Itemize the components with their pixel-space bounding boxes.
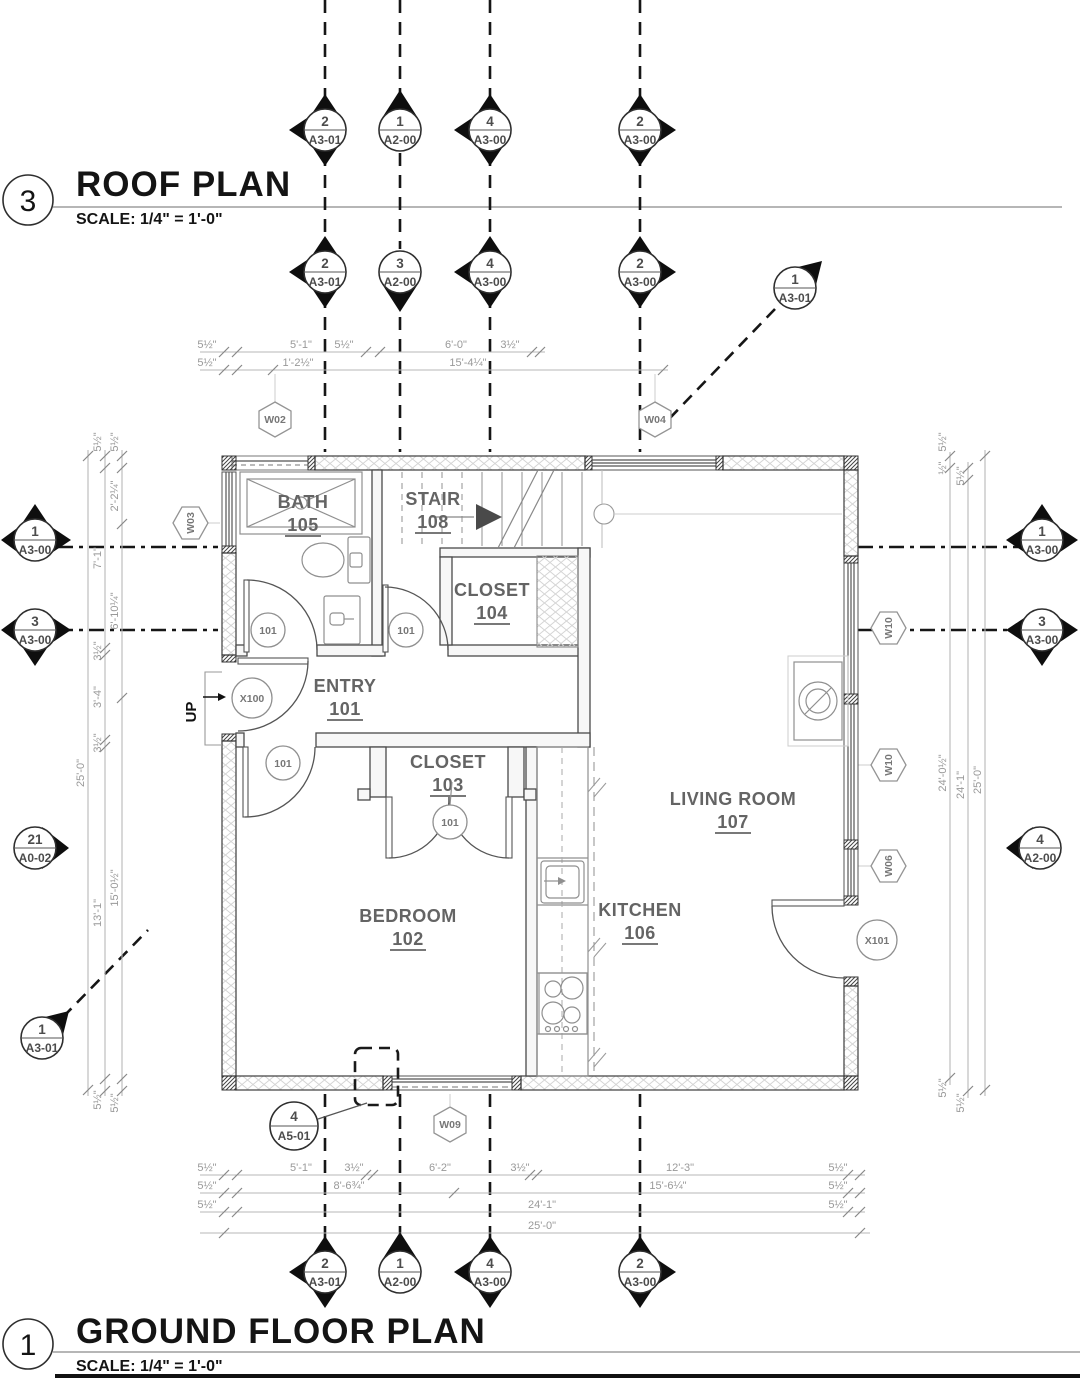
svg-text:106: 106 bbox=[624, 923, 656, 943]
marker-left-0: 1A3-00 bbox=[1, 504, 71, 561]
svg-text:8'-6¾": 8'-6¾" bbox=[333, 1180, 364, 1192]
svg-text:W02: W02 bbox=[264, 414, 286, 426]
svg-text:1: 1 bbox=[31, 524, 39, 539]
marker-top2-4: 1A3-01 bbox=[774, 261, 822, 309]
room-label-living: LIVING ROOM 107 bbox=[670, 789, 797, 833]
svg-text:3: 3 bbox=[31, 614, 39, 629]
svg-text:15'-0½": 15'-0½" bbox=[109, 869, 121, 906]
drawing-sheet: 3 ROOF PLAN SCALE: 1/4" = 1'-0" 5½" 5'-1 bbox=[0, 0, 1080, 1378]
svg-text:3½": 3½" bbox=[510, 1162, 529, 1174]
svg-text:A5-01: A5-01 bbox=[278, 1129, 311, 1143]
svg-text:103: 103 bbox=[432, 775, 464, 795]
kitchen-sink bbox=[541, 861, 584, 903]
room-label-closet103: CLOSET 103 bbox=[410, 752, 486, 796]
svg-text:3: 3 bbox=[396, 256, 404, 271]
stair-newel-post bbox=[594, 504, 614, 524]
entry-stoop: UP bbox=[183, 672, 226, 745]
svg-text:2: 2 bbox=[321, 114, 329, 129]
svg-text:5½": 5½" bbox=[334, 339, 353, 351]
kitchen-fixtures bbox=[537, 747, 606, 1076]
window-w03 bbox=[222, 472, 236, 546]
bath-sink bbox=[324, 596, 360, 644]
marker-right-1: 3A3-00 bbox=[1006, 609, 1078, 666]
svg-text:BEDROOM: BEDROOM bbox=[359, 906, 457, 926]
svg-text:2: 2 bbox=[636, 1256, 644, 1271]
svg-text:A2-00: A2-00 bbox=[384, 275, 417, 289]
window-w10-upper bbox=[844, 563, 858, 694]
svg-text:W10: W10 bbox=[883, 617, 895, 639]
svg-text:A2-00: A2-00 bbox=[1024, 851, 1057, 865]
tag-101-bath: 101 bbox=[251, 613, 285, 647]
roof-plan-number: 3 bbox=[20, 185, 37, 218]
svg-text:15'-6¼": 15'-6¼" bbox=[649, 1180, 686, 1192]
svg-text:101: 101 bbox=[397, 625, 415, 637]
svg-text:101: 101 bbox=[329, 699, 361, 719]
svg-text:4: 4 bbox=[486, 1256, 494, 1271]
room-label-entry: ENTRY 101 bbox=[314, 676, 377, 720]
marker-left-3: 1A3-01 bbox=[21, 1011, 69, 1059]
marker-bottom-2: 4A3-00 bbox=[454, 1236, 511, 1308]
svg-text:5½": 5½" bbox=[92, 432, 104, 451]
svg-text:4: 4 bbox=[1036, 832, 1044, 847]
washer bbox=[788, 656, 848, 746]
svg-text:3: 3 bbox=[1038, 614, 1046, 629]
svg-text:5½": 5½" bbox=[197, 1162, 216, 1174]
svg-text:5½": 5½" bbox=[197, 339, 216, 351]
svg-text:X100: X100 bbox=[240, 693, 265, 705]
svg-text:5½": 5½" bbox=[828, 1180, 847, 1192]
svg-text:A2-00: A2-00 bbox=[384, 133, 417, 147]
room-label-bath: BATH 105 bbox=[278, 492, 329, 536]
svg-text:5½": 5½" bbox=[955, 466, 967, 485]
marker-top1-0: 2A3-01 bbox=[289, 94, 346, 166]
svg-text:1: 1 bbox=[396, 114, 404, 129]
detail-callout: 4 A5-01 bbox=[270, 1048, 398, 1150]
tag-101-closet104: 101 bbox=[389, 613, 423, 647]
svg-text:3½": 3½" bbox=[92, 641, 104, 660]
stove bbox=[539, 973, 587, 1034]
ground-floor-title: GROUND FLOOR PLAN bbox=[76, 1312, 486, 1351]
svg-text:4: 4 bbox=[290, 1109, 298, 1124]
svg-text:W06: W06 bbox=[883, 855, 895, 877]
svg-text:24'-0½": 24'-0½" bbox=[937, 754, 949, 791]
svg-text:A3-01: A3-01 bbox=[309, 1275, 342, 1289]
tag-w10-upper: W10 bbox=[871, 612, 906, 644]
svg-text:ENTRY: ENTRY bbox=[314, 676, 377, 696]
window-w09 bbox=[392, 1076, 512, 1090]
svg-text:5½": 5½" bbox=[937, 432, 949, 451]
svg-text:25'-0": 25'-0" bbox=[75, 759, 87, 787]
tag-101-bedroom: 101 bbox=[266, 746, 300, 780]
svg-text:2'-2¼": 2'-2¼" bbox=[109, 480, 121, 511]
svg-text:A3-01: A3-01 bbox=[309, 275, 342, 289]
marker-top2-0: 2A3-01 bbox=[289, 236, 346, 308]
svg-text:6'-10¼": 6'-10¼" bbox=[109, 592, 121, 629]
window-w02 bbox=[232, 456, 308, 470]
svg-text:W09: W09 bbox=[439, 1119, 461, 1131]
tag-w03: W03 bbox=[173, 507, 208, 539]
svg-text:7'-1": 7'-1" bbox=[92, 547, 104, 569]
roof-plan-titleblock: 3 ROOF PLAN SCALE: 1/4" = 1'-0" bbox=[3, 165, 1062, 228]
svg-text:A3-01: A3-01 bbox=[779, 291, 812, 305]
svg-text:CLOSET: CLOSET bbox=[410, 752, 486, 772]
ground-floor-titleblock: 1 GROUND FLOOR PLAN SCALE: 1/4" = 1'-0" bbox=[3, 1312, 1080, 1376]
stair-direction-arrow bbox=[476, 504, 502, 530]
svg-text:6'-2": 6'-2" bbox=[429, 1162, 451, 1174]
svg-text:104: 104 bbox=[476, 603, 508, 623]
tag-w02: W02 bbox=[259, 402, 291, 437]
svg-text:101: 101 bbox=[274, 758, 292, 770]
svg-text:STAIR: STAIR bbox=[405, 489, 460, 509]
svg-text:5½": 5½" bbox=[92, 1090, 104, 1109]
ground-floor-number: 1 bbox=[20, 1329, 37, 1362]
svg-text:21: 21 bbox=[27, 832, 43, 847]
up-label: UP bbox=[183, 702, 200, 723]
door-living-x101 bbox=[772, 900, 844, 978]
svg-text:1: 1 bbox=[791, 272, 799, 287]
svg-text:2: 2 bbox=[321, 1256, 329, 1271]
svg-text:3½": 3½" bbox=[344, 1162, 363, 1174]
svg-text:24'-1": 24'-1" bbox=[528, 1199, 556, 1211]
svg-text:X101: X101 bbox=[865, 935, 890, 947]
tag-w09: W09 bbox=[434, 1107, 466, 1142]
svg-text:1: 1 bbox=[396, 1256, 404, 1271]
svg-text:A3-01: A3-01 bbox=[26, 1041, 59, 1055]
svg-text:3½": 3½" bbox=[500, 339, 519, 351]
svg-text:4: 4 bbox=[486, 256, 494, 271]
svg-text:W04: W04 bbox=[644, 414, 666, 426]
svg-text:A2-00: A2-00 bbox=[384, 1275, 417, 1289]
svg-text:5½": 5½" bbox=[197, 1199, 216, 1211]
svg-text:5½": 5½" bbox=[955, 1093, 967, 1112]
svg-text:A3-00: A3-00 bbox=[624, 133, 657, 147]
svg-text:5½": 5½" bbox=[937, 1078, 949, 1097]
svg-text:15'-4¼": 15'-4¼" bbox=[449, 357, 486, 369]
svg-text:1'-2½": 1'-2½" bbox=[282, 357, 313, 369]
svg-text:A3-00: A3-00 bbox=[624, 1275, 657, 1289]
svg-text:13'-1": 13'-1" bbox=[92, 899, 104, 927]
svg-text:4: 4 bbox=[486, 114, 494, 129]
svg-text:5½": 5½" bbox=[197, 1180, 216, 1192]
svg-text:108: 108 bbox=[417, 512, 449, 532]
marker-top1-2: 4A3-00 bbox=[454, 94, 511, 166]
section-markers: 2A3-01 1A2-00 4A3-00 2A3-00 2A3-01 3A2-0… bbox=[1, 90, 1078, 1308]
svg-text:A0-02: A0-02 bbox=[19, 851, 52, 865]
svg-text:12'-3": 12'-3" bbox=[666, 1162, 694, 1174]
svg-text:A3-00: A3-00 bbox=[19, 543, 52, 557]
duct-chase bbox=[537, 556, 578, 647]
floor-plan-svg: 3 ROOF PLAN SCALE: 1/4" = 1'-0" 5½" 5'-1 bbox=[0, 0, 1080, 1378]
marker-left-1: 3A3-00 bbox=[1, 609, 71, 666]
marker-top2-3: 2A3-00 bbox=[619, 236, 676, 308]
svg-text:A3-00: A3-00 bbox=[19, 633, 52, 647]
svg-text:A3-00: A3-00 bbox=[474, 275, 507, 289]
svg-text:1: 1 bbox=[1038, 524, 1046, 539]
marker-right-0: 1A3-00 bbox=[1006, 504, 1078, 561]
room-label-bedroom: BEDROOM 102 bbox=[359, 906, 457, 950]
svg-text:A3-00: A3-00 bbox=[474, 1275, 507, 1289]
svg-text:5½": 5½" bbox=[109, 1093, 121, 1112]
svg-text:KITCHEN: KITCHEN bbox=[598, 900, 682, 920]
svg-text:5½": 5½" bbox=[197, 357, 216, 369]
svg-text:1: 1 bbox=[38, 1022, 46, 1037]
up-arrow bbox=[218, 693, 226, 701]
marker-bottom-1: 1A2-00 bbox=[379, 1232, 421, 1293]
tag-x101: X101 bbox=[857, 920, 897, 960]
svg-text:25'-0": 25'-0" bbox=[528, 1220, 556, 1232]
toilet bbox=[302, 537, 370, 583]
tag-w04: W04 bbox=[639, 402, 671, 437]
svg-text:A3-00: A3-00 bbox=[1026, 633, 1059, 647]
window-w06 bbox=[844, 849, 858, 896]
svg-text:CLOSET: CLOSET bbox=[454, 580, 530, 600]
svg-text:3½": 3½" bbox=[92, 733, 104, 752]
marker-top2-2: 4A3-00 bbox=[454, 236, 511, 308]
svg-text:½": ½" bbox=[937, 461, 949, 474]
svg-text:2: 2 bbox=[321, 256, 329, 271]
window-w04 bbox=[592, 456, 716, 470]
svg-text:A3-01: A3-01 bbox=[309, 133, 342, 147]
svg-text:6'-0": 6'-0" bbox=[445, 339, 467, 351]
svg-text:2: 2 bbox=[636, 114, 644, 129]
svg-text:2: 2 bbox=[636, 256, 644, 271]
tag-x100: X100 bbox=[232, 678, 272, 718]
svg-text:A3-00: A3-00 bbox=[1026, 543, 1059, 557]
svg-text:BATH: BATH bbox=[278, 492, 329, 512]
svg-text:24'-1": 24'-1" bbox=[955, 771, 967, 799]
svg-text:101: 101 bbox=[441, 817, 459, 829]
svg-text:105: 105 bbox=[287, 515, 319, 535]
svg-text:A3-00: A3-00 bbox=[624, 275, 657, 289]
room-label-kitchen: KITCHEN 106 bbox=[598, 900, 682, 944]
svg-text:W03: W03 bbox=[185, 512, 197, 534]
roof-plan-scale: SCALE: 1/4" = 1'-0" bbox=[76, 211, 223, 228]
roof-plan-title: ROOF PLAN bbox=[76, 165, 291, 204]
marker-bottom-3: 2A3-00 bbox=[619, 1236, 676, 1308]
window-w10-lower bbox=[844, 704, 858, 840]
svg-text:5½": 5½" bbox=[828, 1199, 847, 1211]
svg-text:3'-4": 3'-4" bbox=[92, 686, 104, 708]
svg-text:102: 102 bbox=[392, 929, 424, 949]
marker-top2-1: 3A2-00 bbox=[379, 251, 421, 312]
marker-top1-3: 2A3-00 bbox=[619, 94, 676, 166]
svg-text:5'-1": 5'-1" bbox=[290, 339, 312, 351]
svg-text:25'-0": 25'-0" bbox=[972, 766, 984, 794]
svg-text:5½": 5½" bbox=[828, 1162, 847, 1174]
svg-text:W10: W10 bbox=[883, 754, 895, 776]
room-label-closet104: CLOSET 104 bbox=[454, 580, 530, 624]
svg-text:5½": 5½" bbox=[109, 432, 121, 451]
marker-right-2: 4A2-00 bbox=[1006, 827, 1061, 869]
door-tags: 101 101 X100 101 101 X101 bbox=[232, 613, 897, 960]
tag-w06: W06 bbox=[871, 850, 906, 882]
svg-text:5'-1": 5'-1" bbox=[290, 1162, 312, 1174]
room-label-stair: STAIR 108 bbox=[405, 489, 460, 533]
svg-text:LIVING ROOM: LIVING ROOM bbox=[670, 789, 797, 809]
tag-w10-lower: W10 bbox=[871, 749, 906, 781]
marker-left-2: 21A0-02 bbox=[14, 827, 69, 869]
marker-top1-1: 1A2-00 bbox=[379, 90, 421, 151]
svg-text:107: 107 bbox=[717, 812, 749, 832]
stair bbox=[402, 470, 842, 548]
ground-floor-scale: SCALE: 1/4" = 1'-0" bbox=[76, 1358, 223, 1375]
marker-bottom-0: 2A3-01 bbox=[289, 1236, 346, 1308]
svg-text:A3-00: A3-00 bbox=[474, 133, 507, 147]
svg-text:101: 101 bbox=[259, 625, 277, 637]
